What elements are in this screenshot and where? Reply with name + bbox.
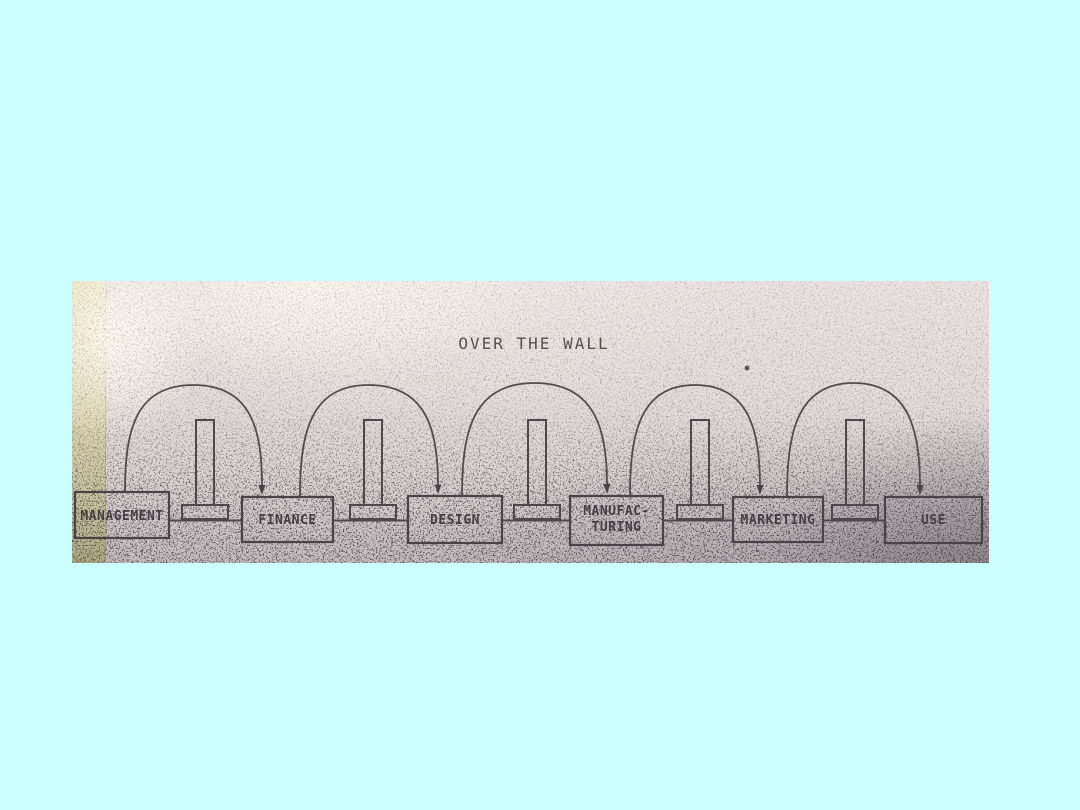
process-box-label: TURING — [592, 520, 642, 535]
process-box-label: MANAGEMENT — [80, 509, 163, 524]
slide-background: OVER THE WALL — [0, 0, 1080, 810]
process-box-label: MANUFAC- — [583, 504, 650, 519]
process-box-label: FINANCE — [258, 513, 316, 528]
process-box-label: USE — [921, 513, 946, 528]
process-box-label: MARKETING — [741, 513, 816, 528]
diagram-photo: OVER THE WALL — [72, 281, 989, 563]
process-box-label: DESIGN — [430, 513, 480, 528]
over-the-wall-diagram: OVER THE WALL — [72, 281, 989, 563]
diagram-title: OVER THE WALL — [458, 334, 609, 353]
